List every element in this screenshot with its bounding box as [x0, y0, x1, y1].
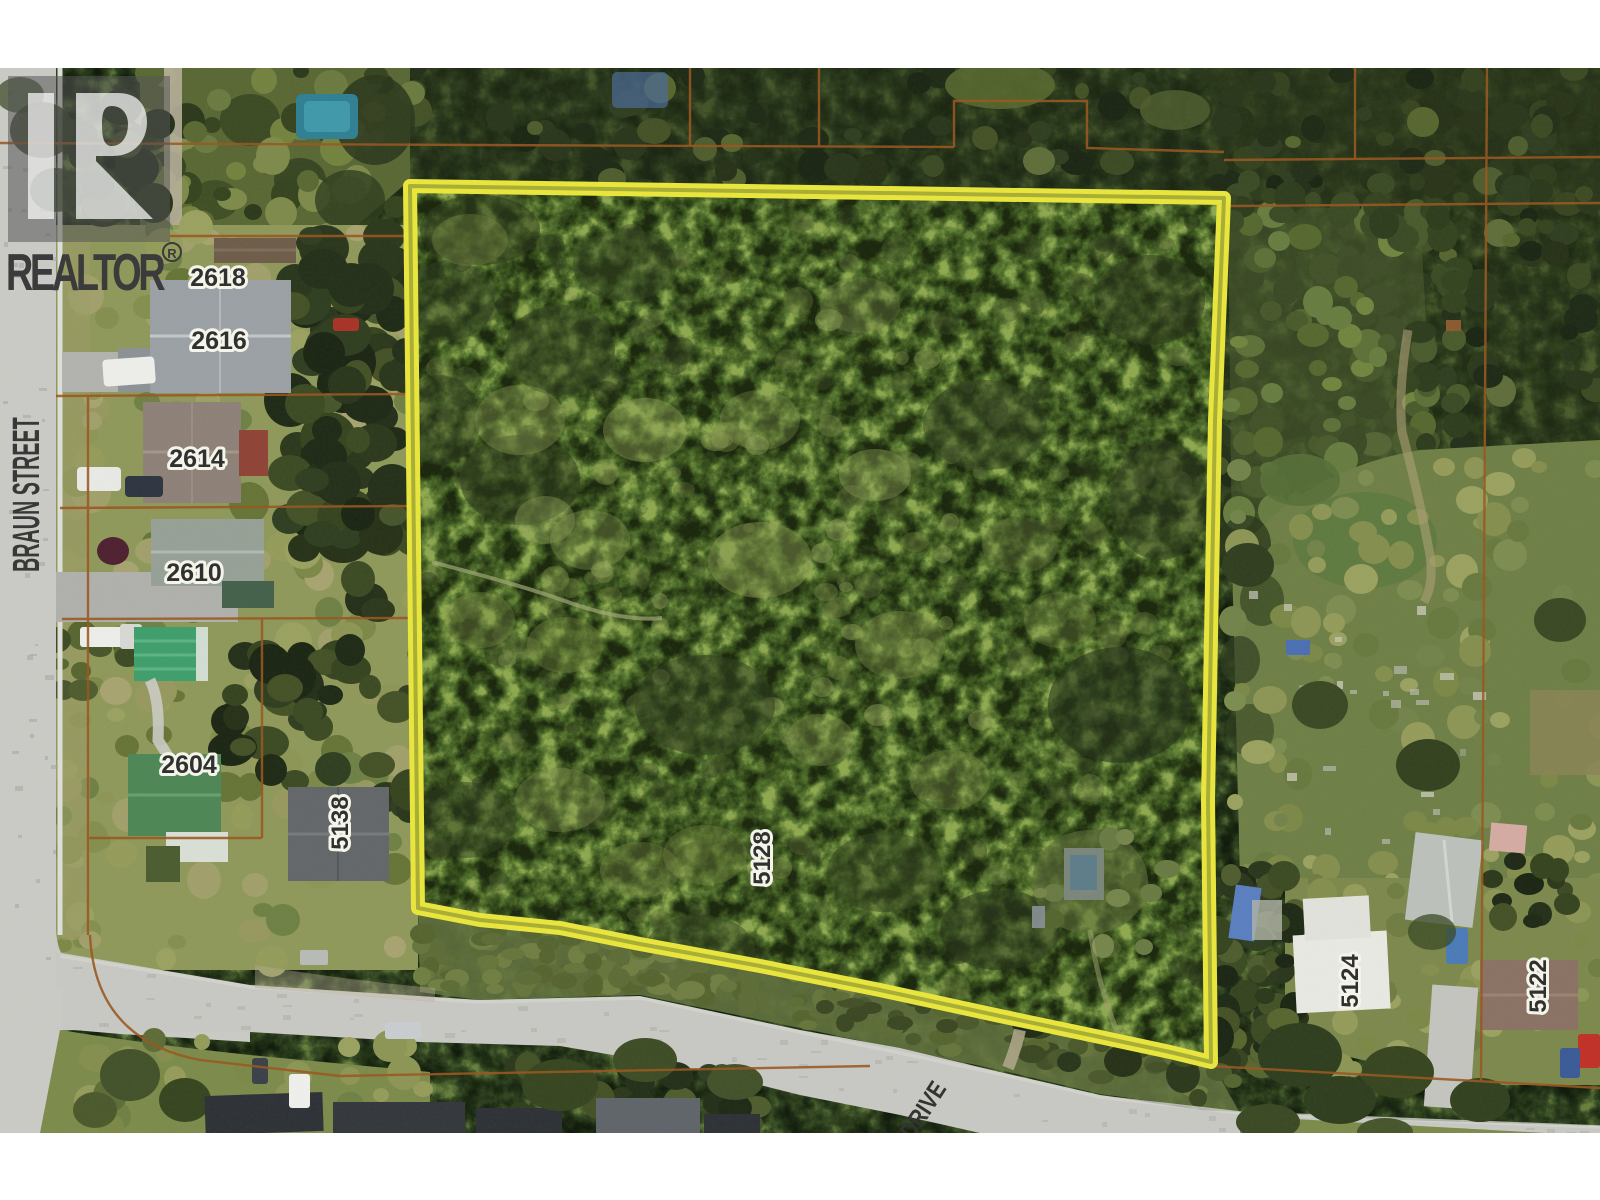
svg-text:REALTOR: REALTOR	[6, 243, 165, 301]
svg-text:R: R	[167, 246, 177, 261]
